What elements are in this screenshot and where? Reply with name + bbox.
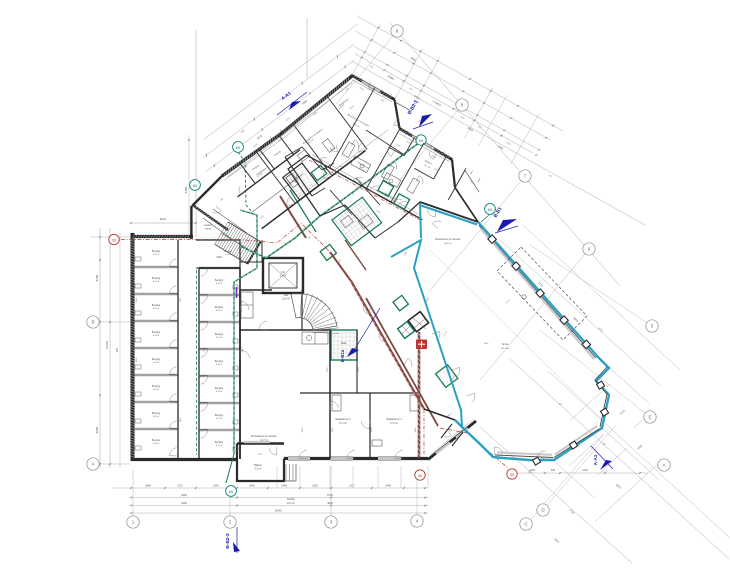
svg-text:250: 250	[115, 347, 119, 352]
svg-text:3400: 3400	[371, 427, 373, 433]
svg-text:Berging: Berging	[152, 304, 161, 307]
svg-text:30: 30	[112, 238, 116, 242]
svg-text:4: 4	[416, 519, 419, 524]
svg-text:Berging: Berging	[152, 277, 161, 280]
svg-text:2300: 2300	[204, 347, 206, 353]
svg-text:7: 7	[524, 174, 527, 179]
svg-text:84.6 m²: 84.6 m²	[444, 242, 452, 245]
svg-text:5.6 m²: 5.6 m²	[153, 388, 159, 391]
svg-text:117.5 m²: 117.5 m²	[501, 347, 510, 350]
svg-text:1000: 1000	[312, 485, 318, 488]
svg-text:41.7 m²: 41.7 m²	[260, 439, 268, 442]
svg-text:3: 3	[330, 520, 333, 525]
svg-text:Slaapkamer 2: Slaapkamer 2	[335, 418, 351, 421]
svg-text:5.2 m²: 5.2 m²	[216, 444, 222, 447]
svg-text:Badk.: Badk.	[341, 342, 347, 345]
svg-text:240: 240	[551, 469, 556, 472]
svg-text:1810: 1810	[180, 417, 182, 423]
svg-text:5.6 m²: 5.6 m²	[153, 361, 159, 364]
svg-text:4800: 4800	[327, 501, 333, 505]
svg-text:1: 1	[132, 520, 135, 525]
svg-text:Berging: Berging	[215, 306, 224, 309]
svg-text:5.2 m²: 5.2 m²	[216, 363, 222, 366]
svg-text:30: 30	[418, 474, 422, 478]
svg-text:17.2 m²: 17.2 m²	[390, 422, 398, 425]
svg-text:5.6 m²: 5.6 m²	[153, 334, 159, 337]
svg-text:Lift: Lift	[281, 270, 285, 274]
svg-text:Berging: Berging	[152, 439, 161, 442]
svg-text:5.1 m²: 5.1 m²	[225, 253, 231, 256]
svg-text:4011: 4011	[160, 217, 167, 221]
svg-text:Galerij: Galerij	[204, 224, 212, 227]
svg-text:2754: 2754	[258, 454, 264, 456]
svg-text:Balkon: Balkon	[254, 464, 262, 467]
svg-text:8: 8	[461, 103, 464, 108]
svg-text:1810: 1810	[136, 357, 138, 363]
svg-text:A-A1: A-A1	[593, 454, 598, 465]
svg-text:Berging: Berging	[215, 360, 224, 363]
svg-text:B: B	[91, 320, 94, 325]
svg-text:Berging: Berging	[215, 387, 224, 390]
svg-text:1848: 1848	[145, 485, 151, 488]
svg-text:5250: 5250	[184, 186, 188, 193]
svg-text:5.2 m²: 5.2 m²	[216, 309, 222, 312]
svg-text:6.1 m²: 6.1 m²	[280, 275, 287, 278]
svg-text:5.6 m²: 5.6 m²	[153, 415, 159, 418]
svg-text:17.2 m²: 17.2 m²	[339, 422, 347, 425]
svg-text:5.6 m²: 5.6 m²	[153, 280, 159, 283]
svg-text:5.2 m²: 5.2 m²	[216, 417, 222, 420]
svg-text:4840: 4840	[242, 347, 244, 353]
svg-text:Woonkamer en keuken: Woonkamer en keuken	[435, 238, 461, 241]
svg-text:Berging: Berging	[152, 385, 161, 388]
svg-text:9000: 9000	[95, 426, 99, 433]
svg-text:Berging: Berging	[215, 441, 224, 444]
svg-text:Berging: Berging	[215, 414, 224, 417]
svg-text:6360: 6360	[181, 493, 187, 497]
svg-text:2: 2	[229, 520, 232, 525]
svg-text:4840: 4840	[415, 427, 417, 433]
svg-text:1429: 1429	[529, 469, 535, 472]
svg-text:Terras: Terras	[502, 343, 510, 346]
svg-text:Hal: Hal	[284, 293, 288, 297]
svg-text:1810: 1810	[180, 297, 182, 303]
svg-text:2640: 2640	[241, 307, 243, 313]
svg-text:1448: 1448	[281, 485, 287, 488]
svg-text:Berging: Berging	[152, 358, 161, 361]
svg-text:60: 60	[488, 207, 493, 212]
svg-text:2100: 2100	[327, 367, 329, 373]
svg-text:1027: 1027	[177, 485, 183, 488]
svg-text:30: 30	[510, 473, 514, 477]
svg-text:10.9 m²: 10.9 m²	[287, 502, 295, 505]
svg-text:Berging: Berging	[215, 279, 224, 282]
svg-text:9: 9	[396, 29, 399, 34]
svg-text:B-B1a: B-B1a	[340, 349, 345, 362]
svg-text:5740: 5740	[327, 493, 333, 497]
svg-text:Woonkamer en keuken: Woonkamer en keuken	[251, 435, 277, 438]
svg-text:5.6 m²: 5.6 m²	[153, 307, 159, 310]
svg-text:2217: 2217	[349, 485, 355, 488]
svg-text:5190: 5190	[95, 274, 99, 281]
svg-text:60: 60	[236, 145, 241, 150]
svg-text:1810: 1810	[136, 297, 138, 303]
svg-text:14630: 14630	[274, 509, 282, 513]
svg-text:6400: 6400	[181, 501, 187, 505]
svg-text:E: E	[648, 415, 651, 420]
svg-text:entree: entree	[205, 228, 212, 231]
svg-text:3400: 3400	[216, 256, 222, 259]
svg-text:Berging: Berging	[215, 333, 224, 336]
svg-text:Berging: Berging	[224, 250, 232, 253]
svg-text:60: 60	[193, 183, 198, 188]
svg-text:Berging: Berging	[152, 412, 161, 415]
svg-text:1500: 1500	[358, 367, 360, 373]
svg-text:3400: 3400	[302, 427, 304, 433]
svg-text:Berging: Berging	[152, 331, 161, 334]
svg-text:B-B2-2: B-B2-2	[225, 533, 231, 549]
svg-text:4140: 4140	[582, 469, 588, 472]
svg-text:Slaapkamer 1: Slaapkamer 1	[386, 418, 402, 421]
svg-text:5.2 m²: 5.2 m²	[255, 468, 262, 471]
svg-text:5.6 m²: 5.6 m²	[153, 253, 159, 256]
svg-text:60: 60	[229, 489, 234, 494]
svg-text:5.2 m²: 5.2 m²	[216, 336, 222, 339]
svg-text:5.2 m²: 5.2 m²	[216, 390, 222, 393]
svg-text:5.6 m²: 5.6 m²	[153, 442, 159, 445]
svg-text:Kelder: Kelder	[287, 497, 295, 501]
svg-text:15.8 m²: 15.8 m²	[282, 298, 290, 301]
svg-text:60: 60	[419, 139, 423, 143]
svg-text:1448: 1448	[385, 485, 391, 488]
svg-text:1440: 1440	[249, 485, 255, 488]
svg-text:1440: 1440	[213, 485, 219, 488]
svg-text:14470: 14470	[105, 340, 109, 349]
svg-text:5.2 m²: 5.2 m²	[216, 282, 222, 285]
svg-text:6: 6	[588, 247, 591, 252]
svg-text:5: 5	[651, 324, 654, 329]
svg-text:4840: 4840	[332, 427, 334, 433]
svg-text:Berging: Berging	[152, 250, 161, 253]
